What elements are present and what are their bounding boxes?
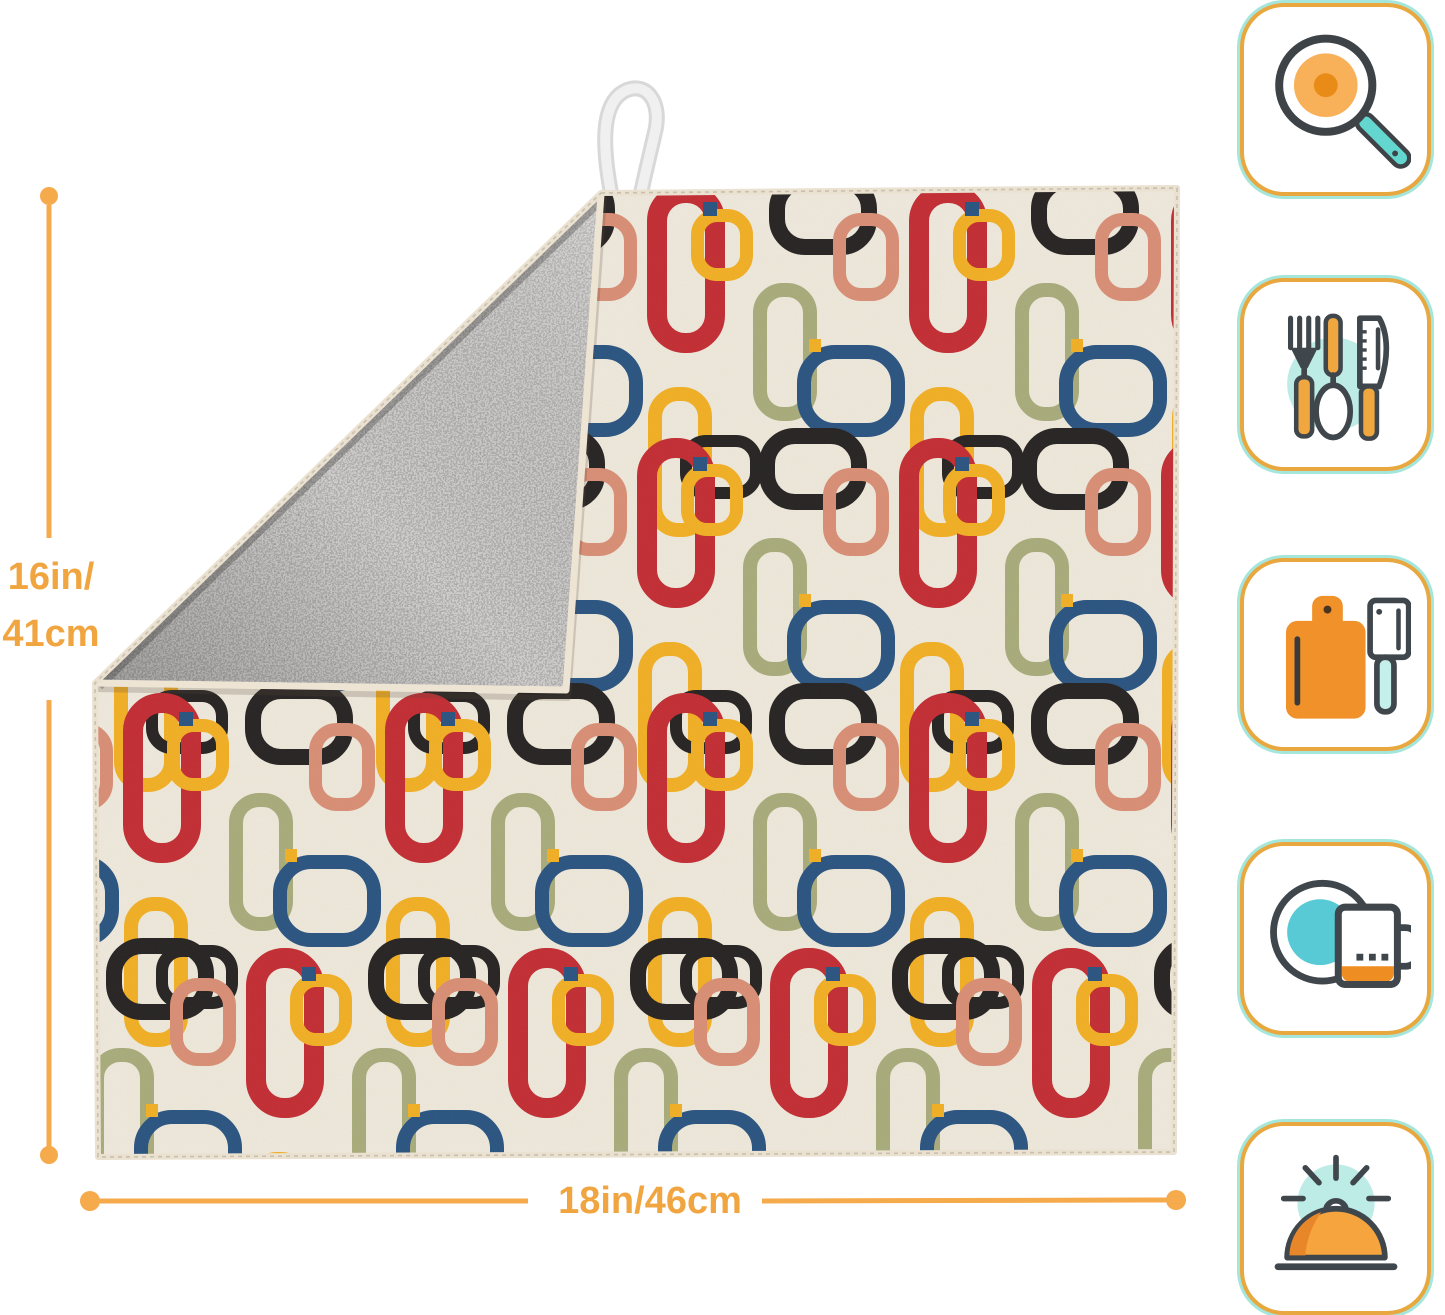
pattern-ring	[0, 800, 24, 924]
pattern-ring	[254, 1159, 304, 1295]
pattern-ring	[0, 958, 52, 1108]
cutting-board-icon	[1261, 580, 1411, 730]
mug	[1338, 907, 1411, 984]
pattern-tick	[285, 339, 297, 352]
mat-scene	[0, 0, 1445, 1315]
drying-mat	[0, 180, 1445, 1295]
pattern-ring	[54, 220, 107, 295]
height-label-line2: 41cm	[0, 606, 102, 663]
pattern-ring	[778, 1159, 828, 1295]
width-dimension-label: 18in/46cm	[520, 1180, 780, 1223]
pattern-tick	[23, 339, 35, 352]
pattern-ring	[1181, 193, 1239, 343]
pattern-ring	[1212, 471, 1261, 530]
knife-icon	[1359, 318, 1385, 438]
pattern-ring	[280, 352, 374, 430]
feature-badge-cutting-board	[1240, 558, 1431, 751]
pattern-ring	[0, 1159, 42, 1295]
product-listing-image: 16in/ 41cm 18in/46cm	[0, 0, 1445, 1315]
pattern-ring	[1179, 904, 1229, 1040]
pattern-tick	[1194, 1104, 1206, 1117]
height-label-line1: 16in/	[0, 549, 102, 606]
pattern-ring	[1179, 394, 1229, 530]
height-dimension-label: 16in/ 41cm	[0, 549, 102, 663]
pattern-tick	[179, 202, 193, 216]
pattern-ring	[0, 290, 24, 414]
pattern-ring	[164, 471, 213, 530]
pattern-ring	[236, 290, 286, 414]
pattern-tick	[169, 457, 183, 471]
pattern-ring	[285, 1206, 355, 1258]
pattern-ring	[0, 436, 73, 502]
pattern-tick	[23, 849, 35, 862]
pattern-ring	[316, 220, 369, 295]
pattern-ring	[1181, 703, 1239, 853]
pan-handle	[1365, 122, 1400, 157]
cutlery-icon	[1261, 300, 1411, 450]
pattern-ring	[436, 216, 485, 275]
pattern-ring	[809, 1206, 879, 1258]
pattern-ring	[395, 193, 453, 343]
pattern-ring	[35, 981, 84, 1040]
feature-badge-cutlery	[1240, 278, 1431, 471]
pattern-ring	[0, 691, 83, 757]
pattern-ring	[131, 394, 181, 530]
plate-and-mug-icon	[1261, 864, 1411, 1014]
pattern-ring	[162, 441, 232, 493]
pattern-ring	[18, 352, 112, 430]
cleaver-icon	[1370, 600, 1409, 711]
feature-badge-dishware	[1240, 842, 1431, 1035]
height-dimension-line	[40, 187, 58, 1164]
pattern-ring	[23, 1206, 93, 1258]
pattern-tick	[1217, 457, 1231, 471]
pattern-tick	[441, 202, 455, 216]
pattern-ring	[123, 448, 181, 598]
frying-pan-icon	[1261, 25, 1411, 175]
pattern-tick	[1227, 712, 1241, 726]
pattern-ring	[1354, 475, 1407, 550]
cutting-board	[1286, 595, 1366, 718]
cloche	[1278, 1200, 1394, 1266]
pattern-ring	[1040, 1159, 1090, 1295]
feature-badge-serving-dome	[1240, 1122, 1431, 1315]
pattern-ring	[1171, 448, 1229, 598]
hanging-loop	[605, 88, 657, 198]
serving-dome-icon	[1261, 1144, 1411, 1294]
pattern-ring	[1222, 216, 1271, 275]
pattern-ring	[0, 181, 83, 247]
pattern-ring	[253, 181, 345, 247]
pan-body	[1279, 38, 1372, 131]
pattern-ring	[133, 193, 191, 343]
pattern-tick	[1227, 202, 1241, 216]
feature-badge-frying-pan	[1240, 3, 1431, 196]
pattern-ring	[174, 216, 223, 275]
pattern-ring	[1071, 1206, 1141, 1258]
